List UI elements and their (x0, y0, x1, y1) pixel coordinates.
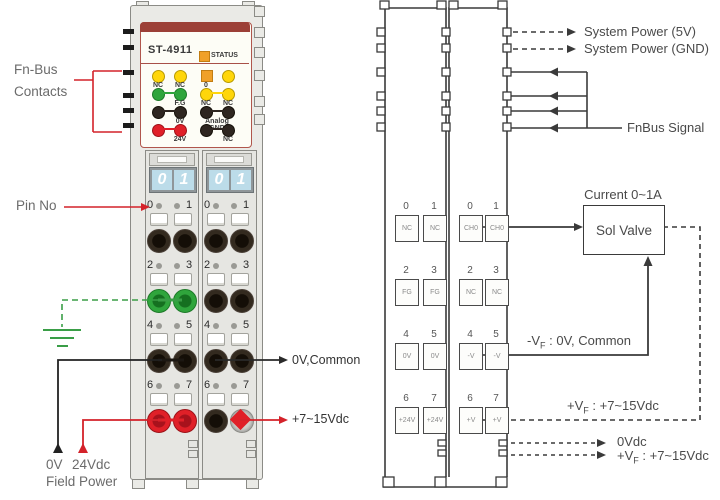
pin-dot (174, 203, 180, 209)
release-button[interactable] (231, 333, 249, 346)
fnbus-contact-tab (123, 93, 134, 98)
rail-pin-box: +24V (395, 407, 419, 434)
led-fg-1 (152, 88, 165, 101)
fnbus-contact-tab (123, 45, 134, 50)
rail-pin-box: +V (459, 407, 483, 434)
sol-valve-box: Sol Valve (583, 205, 665, 255)
module-edge-notch (254, 96, 265, 107)
pin-dot (174, 323, 180, 329)
status-led-label: STATUS (211, 52, 238, 59)
fnbus-bracket (74, 71, 122, 132)
fnbus-contact-tab (123, 29, 134, 34)
fnbus-contact-tab (123, 123, 134, 128)
module-model-number: ST-4911 (148, 44, 192, 56)
rail-pin-number: 2 (459, 265, 481, 276)
rail-pin-box: -V (485, 343, 509, 370)
status-led-icon (199, 51, 210, 62)
fnbus-signal-arrows (511, 68, 622, 133)
rail-pin-number: 7 (485, 393, 507, 404)
release-button[interactable] (207, 273, 225, 286)
release-button[interactable] (174, 213, 192, 226)
rail-pin-box: NC (395, 215, 419, 242)
fnbus-contacts-label-line2: Contacts (14, 84, 67, 99)
out-pos-vf-label: +VF : +7~15Vdc (617, 448, 709, 466)
pin-dot (174, 383, 180, 389)
terminal-ch0[interactable] (230, 229, 254, 253)
rail-pin-number: 2 (395, 265, 417, 276)
led-24v-1 (152, 124, 165, 137)
address-digit: 0 (209, 170, 229, 190)
pin-no-label: Pin No (16, 198, 57, 213)
rail-pin-box: CH0 (485, 215, 509, 242)
terminal-fg[interactable] (147, 289, 171, 313)
release-button[interactable] (150, 273, 168, 286)
system-power-arrows (513, 28, 576, 53)
fnbus-contacts-label-line1: Fn-Bus (14, 62, 58, 77)
pin-dot (174, 263, 180, 269)
pin-number: 4 (147, 319, 153, 331)
terminal-ch0[interactable] (204, 229, 228, 253)
pin-number: 7 (243, 379, 249, 391)
block-latch-grip (214, 156, 244, 163)
module-edge-notch (254, 114, 265, 125)
release-button[interactable] (174, 333, 192, 346)
rail-pin-number: 6 (459, 393, 481, 404)
address-digit: 1 (231, 170, 251, 190)
release-button[interactable] (174, 273, 192, 286)
sol-valve-label: Sol Valve (596, 223, 652, 238)
pin-number: 1 (186, 199, 192, 211)
release-button[interactable] (207, 213, 225, 226)
pin-number: 3 (186, 259, 192, 271)
led-label-nc: NC (213, 136, 243, 143)
pin-dot (156, 383, 162, 389)
pin-dot (213, 203, 219, 209)
field-power-label: Field Power (46, 474, 117, 489)
pin-dot (156, 203, 162, 209)
pin-number: 6 (147, 379, 153, 391)
terminal-0v[interactable] (147, 349, 171, 373)
block-bottom-notch (188, 450, 198, 458)
block-latch-grip (157, 156, 187, 163)
fnbus-contact-tab (123, 108, 134, 113)
rail-pin-box: NC (485, 279, 509, 306)
pin-number: 5 (186, 319, 192, 331)
address-digit: 0 (152, 170, 172, 190)
rail-pin-number: 1 (485, 201, 507, 212)
rail-pin-box: -V (459, 343, 483, 370)
pin-dot (213, 383, 219, 389)
terminal-fg[interactable] (173, 289, 197, 313)
rail-pin-number: 4 (459, 329, 481, 340)
led-nc-5 (200, 124, 213, 137)
rail-pin-box: FG (423, 279, 447, 306)
rail-pin-number: 1 (423, 201, 445, 212)
pin-number: 1 (243, 199, 249, 211)
rail-pin-number: 5 (485, 329, 507, 340)
pin-number: 0 (204, 199, 210, 211)
rail-pin-number: 3 (423, 265, 445, 276)
release-button[interactable] (207, 333, 225, 346)
release-button[interactable] (150, 213, 168, 226)
rail-pin-number: 4 (395, 329, 417, 340)
pin-dot (231, 383, 237, 389)
fnbus-contact-tab (123, 70, 134, 75)
address-display: 0 1 (149, 167, 197, 193)
module-edge-notch (254, 6, 265, 17)
rail-pin-number: 7 (423, 393, 445, 404)
pin-number: 2 (204, 259, 210, 271)
module-edge-notch (254, 47, 265, 58)
rail-pin-number: 0 (395, 201, 417, 212)
pin-dot (156, 263, 162, 269)
pin-number: 0 (147, 199, 153, 211)
release-button[interactable] (231, 273, 249, 286)
release-button[interactable] (150, 393, 168, 406)
led-spare (222, 70, 235, 83)
rail-pin-box: +24V (423, 407, 447, 434)
pin-dot (213, 323, 219, 329)
rail-pin-box: 0V (423, 343, 447, 370)
pos-v-wire (481, 227, 700, 420)
led-0v-1 (152, 106, 165, 119)
neg-vf-label: -VF : 0V, Common (527, 333, 631, 351)
module-edge-notch (254, 70, 265, 81)
terminal-0v[interactable] (173, 349, 197, 373)
rail-pin-number: 5 (423, 329, 445, 340)
module-edge-notch (254, 27, 265, 38)
rail-pin-box: +V (485, 407, 509, 434)
rail-pin-box: 0V (395, 343, 419, 370)
pin-number: 6 (204, 379, 210, 391)
address-digit: 1 (174, 170, 194, 190)
terminal-nc[interactable] (204, 289, 228, 313)
pin-dot (156, 323, 162, 329)
release-button[interactable] (231, 393, 249, 406)
fnbus-signal-label: FnBus Signal (627, 120, 704, 135)
field-0v-label: 0V (46, 457, 63, 472)
module-color-bar (140, 22, 250, 32)
panel-divider (141, 63, 249, 64)
release-button[interactable] (231, 213, 249, 226)
pin-number: 3 (243, 259, 249, 271)
rail-pin-number: 3 (485, 265, 507, 276)
block-bottom-notch (188, 440, 198, 448)
release-button[interactable] (174, 393, 192, 406)
system-power-gnd-label: System Power (GND) (584, 41, 709, 56)
rail-pin-box: NC (459, 279, 483, 306)
block-bottom-notch (246, 440, 256, 448)
rail-pin-box: FG (395, 279, 419, 306)
bottom-output-arrows (511, 439, 606, 459)
system-power-5v-label: System Power (5V) (584, 24, 696, 39)
terminal-neg-v[interactable] (230, 349, 254, 373)
current-rating-label: Current 0~1A (583, 187, 663, 202)
pin-number: 5 (243, 319, 249, 331)
wiring-diagram-figure: ST-4911 STATUS NC NC 0 F.G NC NC 0V Anal… (0, 0, 720, 500)
pin-number: 7 (186, 379, 192, 391)
release-button[interactable] (207, 393, 225, 406)
terminal-nc[interactable] (147, 229, 171, 253)
rail-pin-box: CH0 (459, 215, 483, 242)
ov-common-label: 0V,Common (292, 353, 360, 367)
release-button[interactable] (150, 333, 168, 346)
pos-vf-label: +VF : +7~15Vdc (567, 398, 659, 416)
block-bottom-notch (246, 450, 256, 458)
terminal-pos-v[interactable] (204, 409, 228, 433)
field-24v-label: 24Vdc (72, 457, 110, 472)
terminal-24v[interactable] (173, 409, 197, 433)
terminal-nc[interactable] (173, 229, 197, 253)
terminal-neg-v[interactable] (204, 349, 228, 373)
pin-number: 4 (204, 319, 210, 331)
address-display: 0 1 (206, 167, 254, 193)
pin-dot (231, 203, 237, 209)
pin-number: 2 (147, 259, 153, 271)
pin-dot (213, 263, 219, 269)
vdc-range-label: +7~15Vdc (292, 412, 349, 426)
terminal-24v[interactable] (147, 409, 171, 433)
led-ch0-indicator (201, 70, 213, 82)
terminal-nc[interactable] (230, 289, 254, 313)
pin-dot (231, 263, 237, 269)
out-0vdc-label: 0Vdc (617, 434, 647, 449)
pin-dot (231, 323, 237, 329)
led-label-24v: 24V (165, 136, 195, 143)
rail-pin-number: 6 (395, 393, 417, 404)
rail-pin-number: 0 (459, 201, 481, 212)
rail-pin-box: NC (423, 215, 447, 242)
